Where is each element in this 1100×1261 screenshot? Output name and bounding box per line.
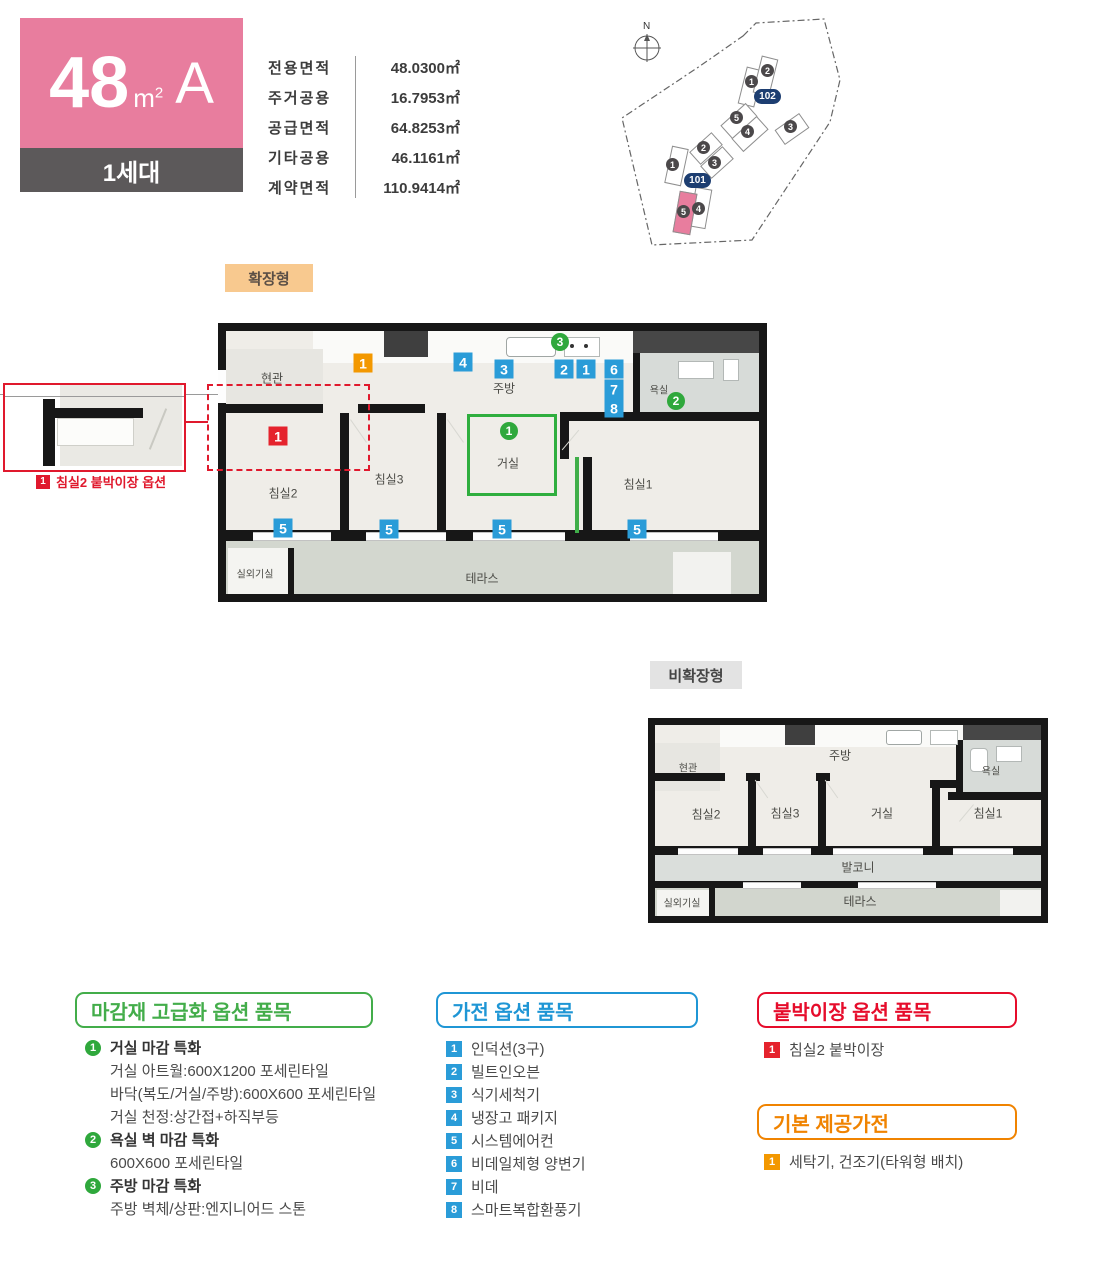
badge-appliance-2: 2 [555,360,574,379]
inset-line [5,396,184,397]
duct-band [633,331,759,353]
room-label-bed3: 침실3 [771,805,800,822]
stove [930,730,958,745]
inset-connector [184,421,208,423]
legend-appliance-title: 가전 옵션 품목 [436,992,698,1028]
legend-basic-items: 1세탁기, 건조기(타워형 배치) [764,1150,1044,1173]
finish-1-badge: 1 [85,1040,101,1056]
room-label-bed1: 침실1 [974,805,1003,822]
north-label: N [643,21,650,32]
wall [583,457,592,535]
wall [655,881,1041,888]
site-plan: N 1 2 5 4 3 2 3 1 4 5 102 101 [610,15,1080,255]
wall [709,888,715,916]
closet-inset [3,383,186,472]
legend-item: 6비데일체형 양변기 [446,1152,706,1175]
room-label-terrace: 테라스 [843,893,876,910]
door-swing [825,780,838,799]
table-row: 공급면적64.8253㎡ [268,112,460,142]
badge-appliance-5: 5 [380,520,399,539]
burner-dot [584,344,588,348]
table-divider [355,56,356,198]
legend-item: 1거실 마감 특화 [85,1036,415,1059]
legend-item: 1인덕션(3구) [446,1037,706,1060]
closet-option-zone [207,384,370,471]
area-table: 전용면적48.0300㎡ 주거공용16.7953㎡ 공급면적64.8253㎡ 기… [268,52,460,202]
household-count: 1세대 [20,148,243,192]
wall [288,548,294,594]
legend-item: 2욕실 벽 마감 특화 [85,1128,415,1151]
wall [759,323,767,602]
badge-appliance-5: 5 [628,520,647,539]
legend-subitem: 거실 천정:상간접+하직부등 [85,1105,415,1128]
tag-extended: 확장형 [225,264,313,292]
legend-item: 1세탁기, 건조기(타워형 배치) [764,1150,1044,1173]
wall [43,399,55,466]
unit-number: 2 [697,141,710,154]
legend-item: 2빌트인오븐 [446,1060,706,1083]
badge-appliance-5: 5 [493,520,512,539]
legend-item: 8스마트복합환풍기 [446,1198,706,1221]
floorplan-basic: 현관 주방 욕실 침실2 침실3 거실 침실1 발코니 실외기실 테라스 [648,718,1048,923]
unit-number: 5 [677,205,690,218]
block-102-label: 102 [754,89,781,104]
window [833,848,923,855]
unit-type-letter: A [175,50,214,117]
badge-appliance-1: 1 [577,360,596,379]
room-label-bed2: 침실2 [269,485,298,502]
closet-badge: 1 [36,475,50,489]
block-101-label: 101 [684,173,711,188]
wall [218,594,767,602]
duct-box [384,331,428,357]
window [473,532,565,541]
unit-number: 1 [666,158,679,171]
room-label-terrace: 테라스 [465,570,498,587]
wall [218,323,767,331]
wall [55,408,143,418]
window [678,848,738,855]
window [743,882,801,889]
kitchen-sink [886,730,922,745]
bath-sink [996,746,1022,762]
badge-appliance-6: 6 [605,360,624,379]
wall [748,776,756,846]
window [366,532,446,541]
bath-sink [678,361,714,379]
legend-basic-title: 기본 제공가전 [757,1104,1017,1140]
unit-number: 3 [784,120,797,133]
legend-item: 3식기세척기 [446,1083,706,1106]
room-label-kitchen: 주방 [493,380,515,397]
legend-item: 1침실2 붙박이장 [764,1038,1024,1061]
room-label-entrance: 현관 [679,760,697,775]
wall [948,792,1041,800]
badge-basic-1: 1 [354,354,373,373]
badge-appliance-4: 4 [454,353,473,372]
legend-item: 3주방 마감 특화 [85,1174,415,1197]
terrace-side-area [673,552,731,594]
window [763,848,811,855]
wall [633,353,640,417]
badge-appliance-7: 7 [605,380,624,399]
tag-basic: 비확장형 [650,661,742,689]
legend-appliance-items: 1인덕션(3구) 2빌트인오븐 3식기세척기 4냉장고 패키지 5시스템에어컨 … [446,1037,706,1221]
room-label-outdoor: 실외기실 [237,566,274,581]
room-label-bed3: 침실3 [375,471,404,488]
wall [932,788,940,846]
finish-2-badge: 2 [85,1132,101,1148]
badge-appliance-3: 3 [495,360,514,379]
table-row: 주거공용16.7953㎡ [268,82,460,112]
wall [1041,718,1048,923]
window [953,848,1013,855]
duct-band [963,725,1041,740]
legend-closet-items: 1침실2 붙박이장 [764,1038,1024,1061]
room-label-kitchen: 주방 [829,747,851,764]
badge-finish-3: 3 [551,333,569,351]
finish-3-badge: 3 [85,1178,101,1194]
kitchen-sink [506,337,556,357]
unit-number: 4 [741,125,754,138]
wall [818,776,826,846]
room-label-balcony: 발코니 [841,859,874,876]
unit-number: 3 [708,156,721,169]
unit-measure: m2 [133,83,163,114]
table-row: 기타공용46.1161㎡ [268,142,460,172]
unit-number: 1 [745,75,758,88]
badge-finish-1: 1 [500,422,518,440]
room-label-living: 거실 [871,805,893,822]
badge-appliance-5: 5 [274,519,293,538]
legend-subitem: 주방 벽체/상판:엔지니어드 스톤 [85,1197,415,1220]
duct-box [785,725,815,745]
table-row: 전용면적48.0300㎡ [268,52,460,82]
unit-number: 2 [761,64,774,77]
brochure-page: 48 m2 A 1세대 전용면적48.0300㎡ 주거공용16.7953㎡ 공급… [0,0,1100,1261]
window [858,882,936,889]
option-line [575,457,579,533]
badge-appliance-8: 8 [605,399,624,418]
inset-caption: 1 침실2 붙박이장 옵션 [36,472,166,491]
table-row: 계약면적110.9414㎡ [268,172,460,202]
legend-closet-title: 붙박이장 옵션 품목 [757,992,1017,1028]
legend-subitem: 거실 아트월:600X1200 포세린타일 [85,1059,415,1082]
bath-fixture [723,359,739,381]
room-label-bed1: 침실1 [624,476,653,493]
wall [648,916,1048,923]
wall [560,421,569,459]
room-label-outdoor: 실외기실 [664,895,701,910]
unit-size: 48 [49,47,129,119]
wall [956,740,963,798]
burner-dot [570,344,574,348]
unit-type-title: 48 m2 A [20,18,243,148]
terrace-side-area [1000,890,1041,916]
legend-subitem: 바닥(복도/거실/주방):600X600 포세린타일 [85,1082,415,1105]
legend-item: 5시스템에어컨 [446,1129,706,1152]
legend-finish-items: 1거실 마감 특화 거실 아트월:600X1200 포세린타일 바닥(복도/거실… [85,1036,415,1220]
unit-type-card: 48 m2 A 1세대 [20,18,243,192]
unit-number: 4 [692,202,705,215]
unit-number: 5 [730,111,743,124]
door-swing [755,780,768,799]
badge-finish-2: 2 [667,392,685,410]
legend-subitem: 600X600 포세린타일 [85,1151,415,1174]
wall [648,718,655,923]
wall [648,718,1048,725]
legend-item: 4냉장고 패키지 [446,1106,706,1129]
door-swing [959,804,974,821]
room-label-bath: 욕실 [982,763,1000,778]
door-swing [447,419,464,443]
room-label-bed2: 침실2 [692,806,721,823]
legend-finish-title: 마감재 고급화 옵션 품목 [75,992,373,1028]
wall [560,412,759,421]
room-label-bath: 욕실 [650,382,668,397]
legend-item: 7비데 [446,1175,706,1198]
wall [437,413,446,535]
builtin-closet [57,418,134,446]
